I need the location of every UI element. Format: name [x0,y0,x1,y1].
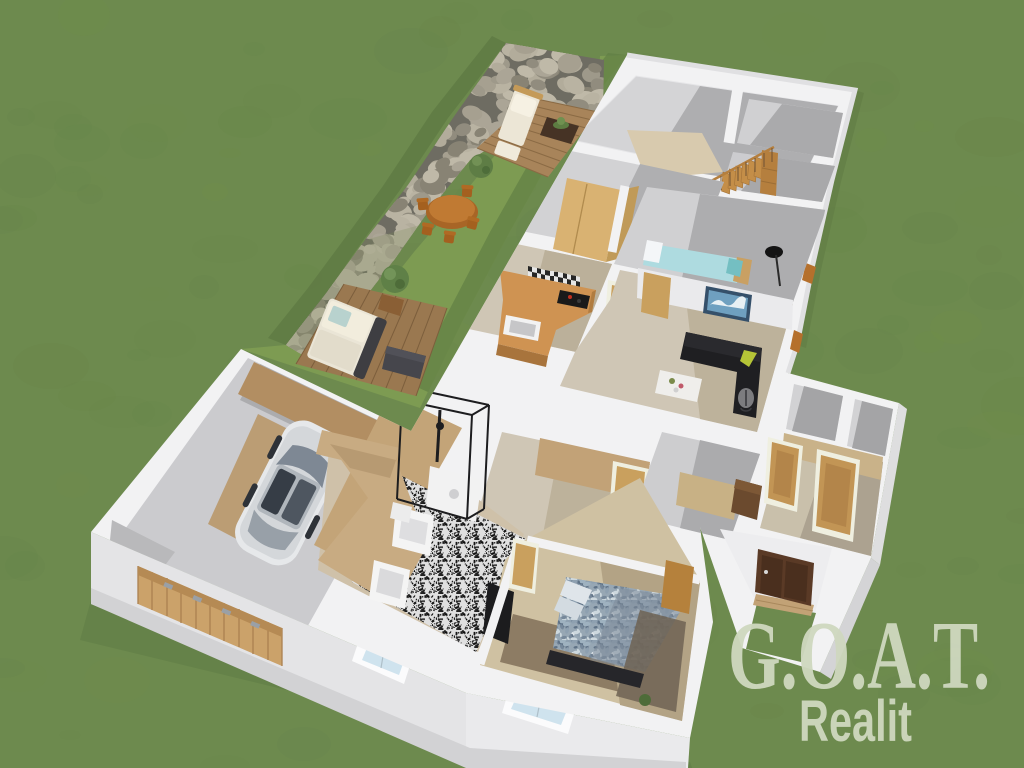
svg-text:Realit: Realit [799,689,912,754]
